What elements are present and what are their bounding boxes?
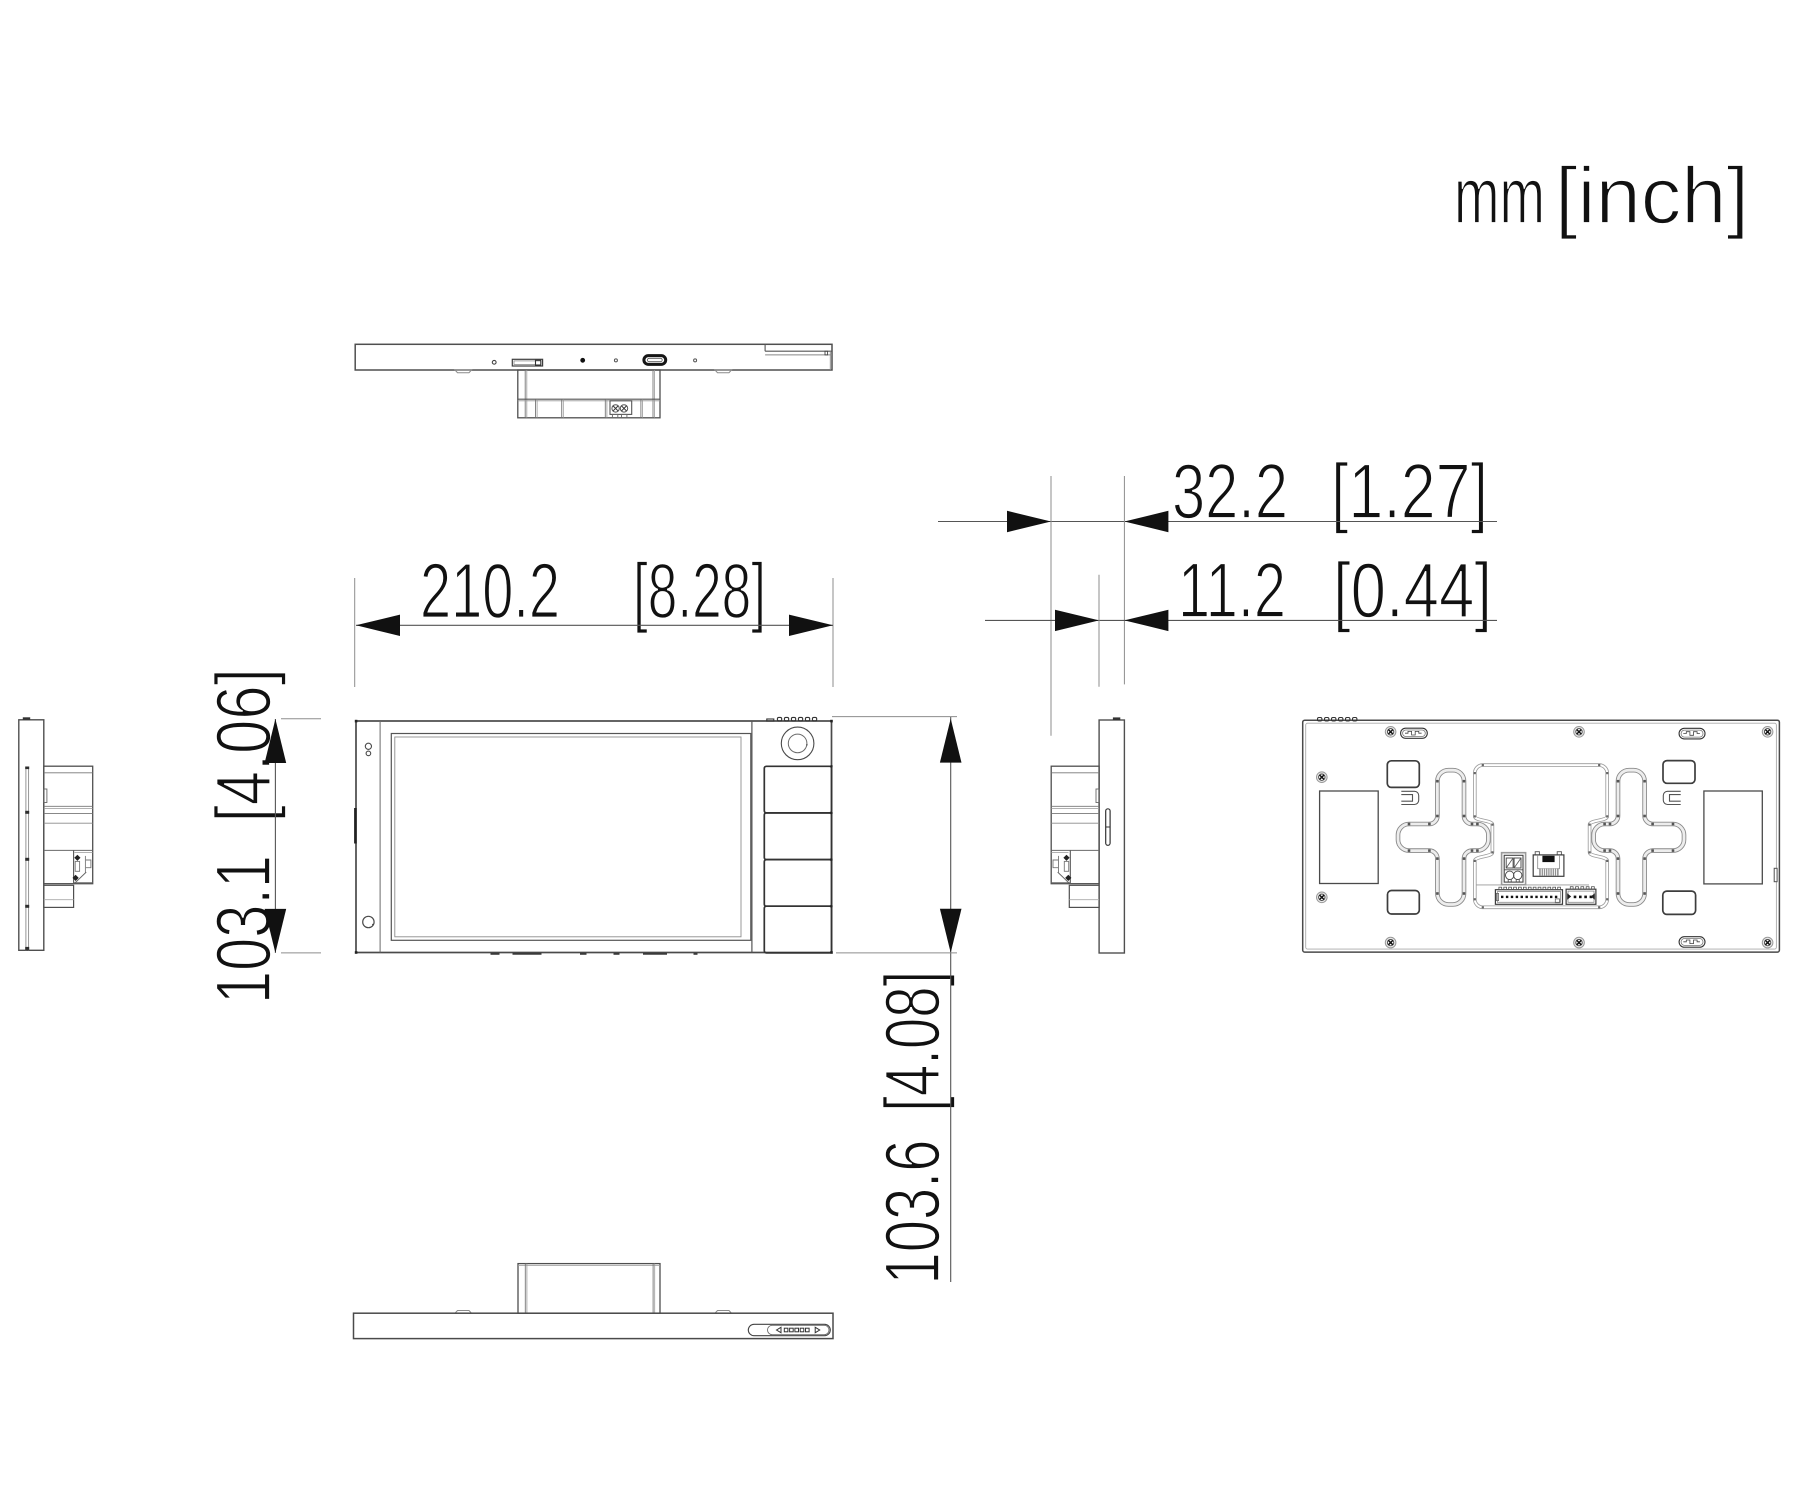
svg-text:103.6: 103.6 xyxy=(868,1140,956,1285)
svg-text:mm: mm xyxy=(1454,151,1545,240)
svg-text:[8.28]: [8.28] xyxy=(633,547,766,635)
svg-text:[4.08]: [4.08] xyxy=(868,971,956,1112)
svg-text:[inch]: [inch] xyxy=(1555,151,1749,240)
svg-text:210.2: 210.2 xyxy=(420,547,560,635)
